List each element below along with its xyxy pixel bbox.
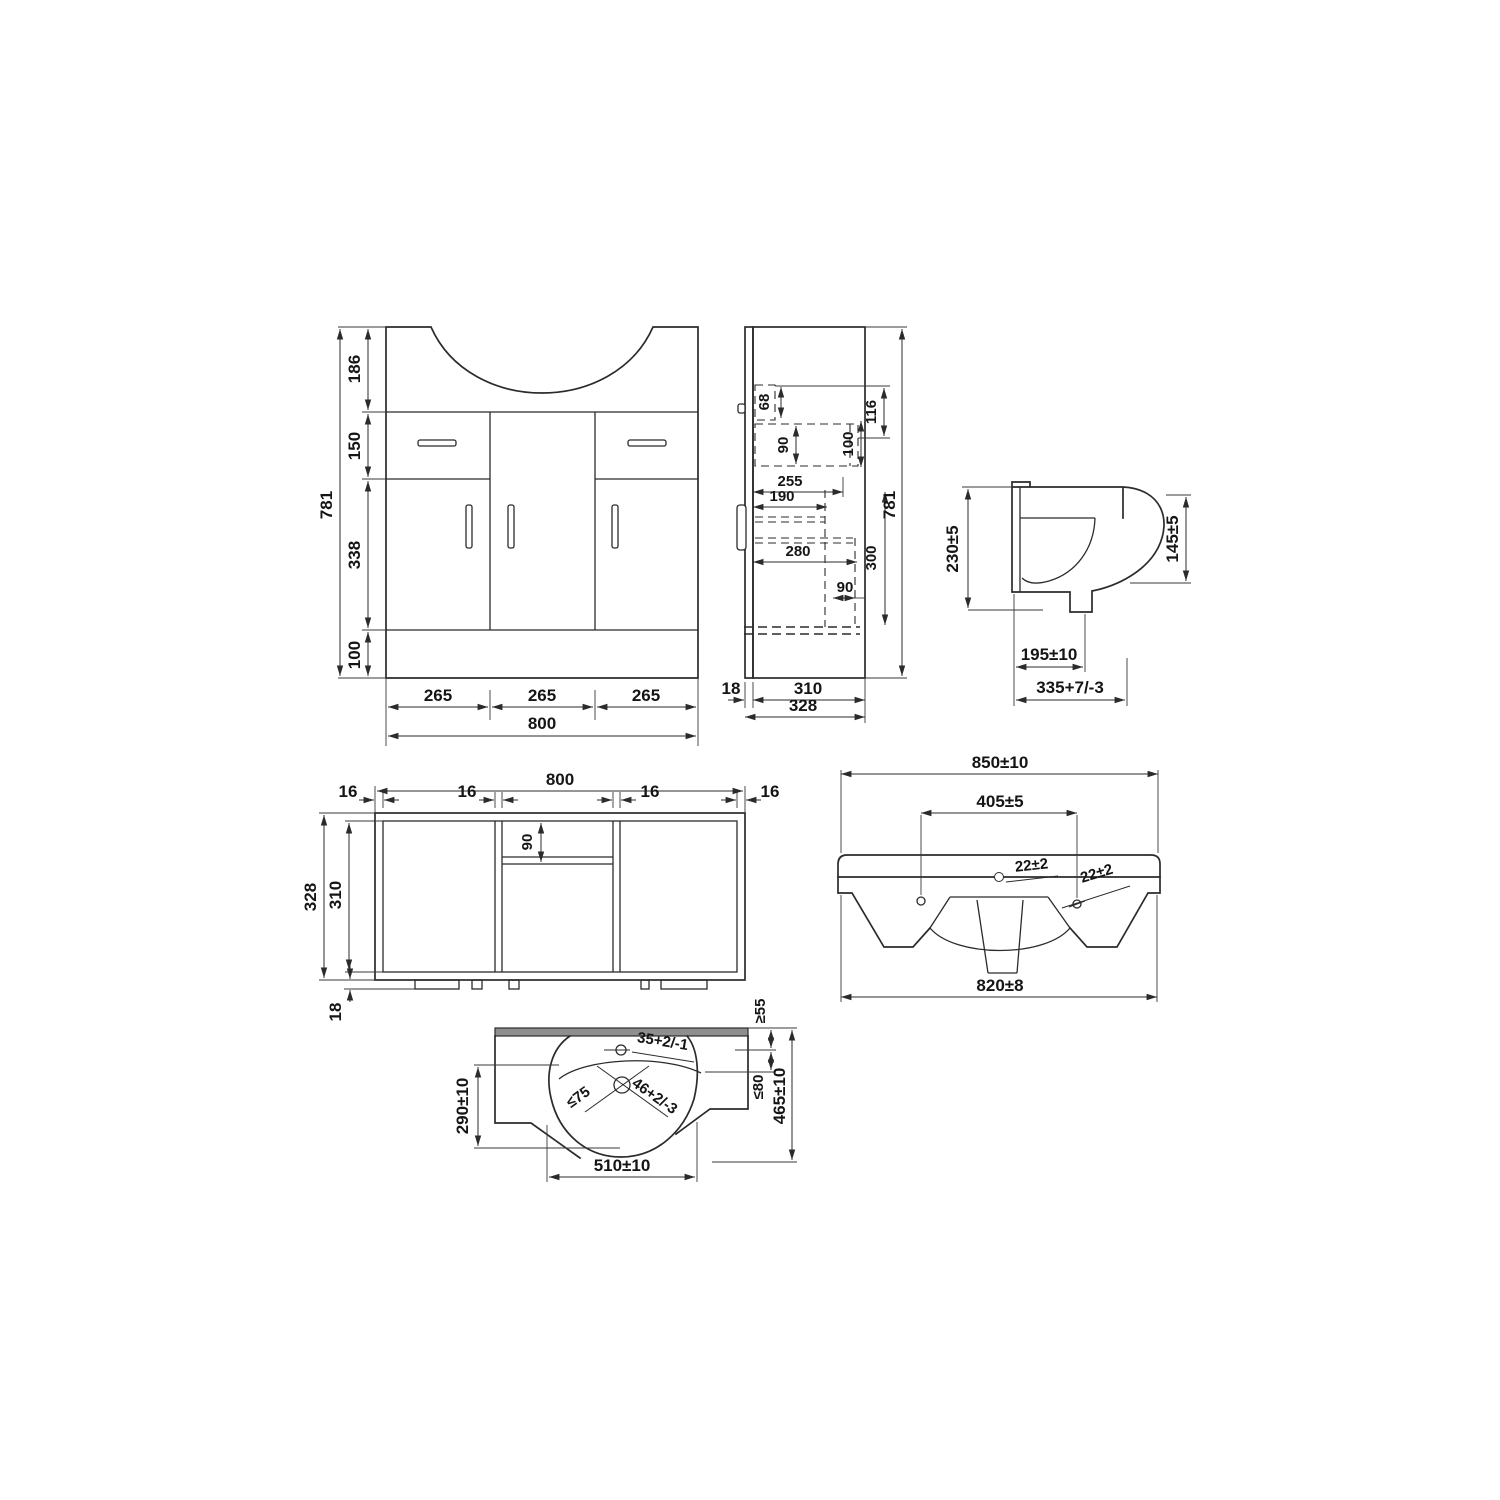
dim-label: 338: [345, 541, 364, 569]
dim-label: 265: [528, 686, 556, 705]
dim-label: 22±2: [1014, 855, 1049, 875]
tap-dia-callout-a: 22±2: [984, 855, 1058, 882]
dim-label: 16: [339, 782, 358, 801]
dim-label: 280: [785, 543, 810, 560]
dim-label: 16: [458, 782, 477, 801]
plan-feet: [415, 980, 707, 989]
counter-front-edge: [495, 1028, 748, 1036]
dim-label: 190: [769, 488, 794, 505]
dim-label: 150: [345, 432, 364, 460]
dim-label: 68: [756, 394, 773, 411]
door-handle-right: [612, 505, 618, 548]
plan-outer-outline: [375, 813, 745, 980]
basin-profile-view: 230±5 145±5 195±10 335+7/-3: [943, 482, 1191, 706]
dim-label: 265: [632, 686, 660, 705]
dim-label: 310: [326, 881, 345, 909]
basin-plan-view: 35+2/-1 ≤75 46+2/-3 290±10 510±10 ≥55 ≤8…: [453, 999, 797, 1182]
basin-bowl-lines: [930, 897, 1070, 973]
dim-label: 820±8: [976, 976, 1023, 995]
dim-label: 195±10: [1021, 645, 1078, 664]
dim-label: 328: [789, 696, 817, 715]
drain-callout: ≤75 46+2/-3: [563, 1066, 680, 1118]
dim-label: 290±10: [453, 1078, 472, 1135]
side-section-view: 68 90 100 116 255 190 280 90 300 781 18 …: [722, 327, 907, 723]
dim-label: 781: [880, 491, 899, 519]
dim-label: 18: [326, 1003, 345, 1022]
extension-lines: [962, 487, 1191, 706]
dim-label: 145±5: [1163, 515, 1182, 562]
dim-label: 16: [641, 782, 660, 801]
dim-label: 90: [837, 579, 854, 596]
dim-label: 18: [722, 679, 741, 698]
dim-label: 850±10: [972, 753, 1029, 772]
hidden-lines-plinth: [744, 627, 860, 634]
dim-label: 510±10: [594, 1156, 651, 1175]
bowl-inner-rim: [559, 1061, 701, 1079]
extension-lines-top: [375, 786, 745, 813]
plan-dividers: [495, 821, 620, 972]
dim-label: 300: [863, 545, 880, 570]
dim-label: 100: [345, 641, 364, 669]
side-drawer-handle: [738, 404, 745, 413]
basin-front-view: 850±10 405±5 22±2 22±2 820±8: [838, 753, 1160, 1002]
dim-label: 328: [301, 883, 320, 911]
dim-label: 230±5: [943, 525, 962, 572]
dim-label: 781: [317, 491, 336, 519]
dim-label: 465±10: [770, 1068, 789, 1125]
side-door-handle: [737, 505, 746, 550]
dim-label: 265: [424, 686, 452, 705]
dim-label: 800: [528, 714, 556, 733]
dim-label: ≥55: [752, 999, 769, 1024]
dim-label: 405±5: [976, 792, 1023, 811]
dim-label: 22±2: [1078, 861, 1115, 887]
side-door-panel: [745, 327, 753, 678]
dim-label: 335+7/-3: [1036, 678, 1104, 697]
extension-lines: [338, 327, 698, 746]
dim-label: ≤75: [563, 1083, 593, 1111]
dim-label: 90: [775, 437, 792, 454]
front-elevation-view: 781 186 150 338 100 265 265 265 800: [317, 327, 698, 746]
drawer-handle-left: [418, 440, 456, 446]
drawing-sheet: 781 186 150 338 100 265 265 265 800 68 9…: [0, 0, 1500, 1500]
dim-label: ≤80: [750, 1075, 767, 1100]
basin-under-outline: [838, 877, 1160, 947]
dim-label: 90: [519, 834, 536, 851]
vanity-technical-drawing: 781 186 150 338 100 265 265 265 800 68 9…: [0, 0, 1500, 1500]
cabinet-outline: [386, 327, 698, 678]
dim-label: 116: [863, 400, 880, 424]
door-handle-center: [508, 505, 514, 548]
dim-label: 800: [546, 770, 574, 789]
tap-hole-left: [917, 897, 925, 905]
dim-label: 186: [345, 355, 364, 383]
dim-label: 46+2/-3: [629, 1075, 681, 1118]
tap-dia-callout-b: 22±2: [1062, 861, 1130, 908]
basin-profile-inner: [1020, 487, 1095, 592]
drawer-handle-right: [628, 440, 666, 446]
plan-inner-outline: [383, 821, 737, 972]
door-handle-left: [466, 505, 472, 548]
cabinet-plan-view: 800 16 16 16 16 90 328 310 18: [301, 770, 779, 1021]
dim-label: 16: [761, 782, 780, 801]
dim-label: 100: [840, 431, 857, 456]
